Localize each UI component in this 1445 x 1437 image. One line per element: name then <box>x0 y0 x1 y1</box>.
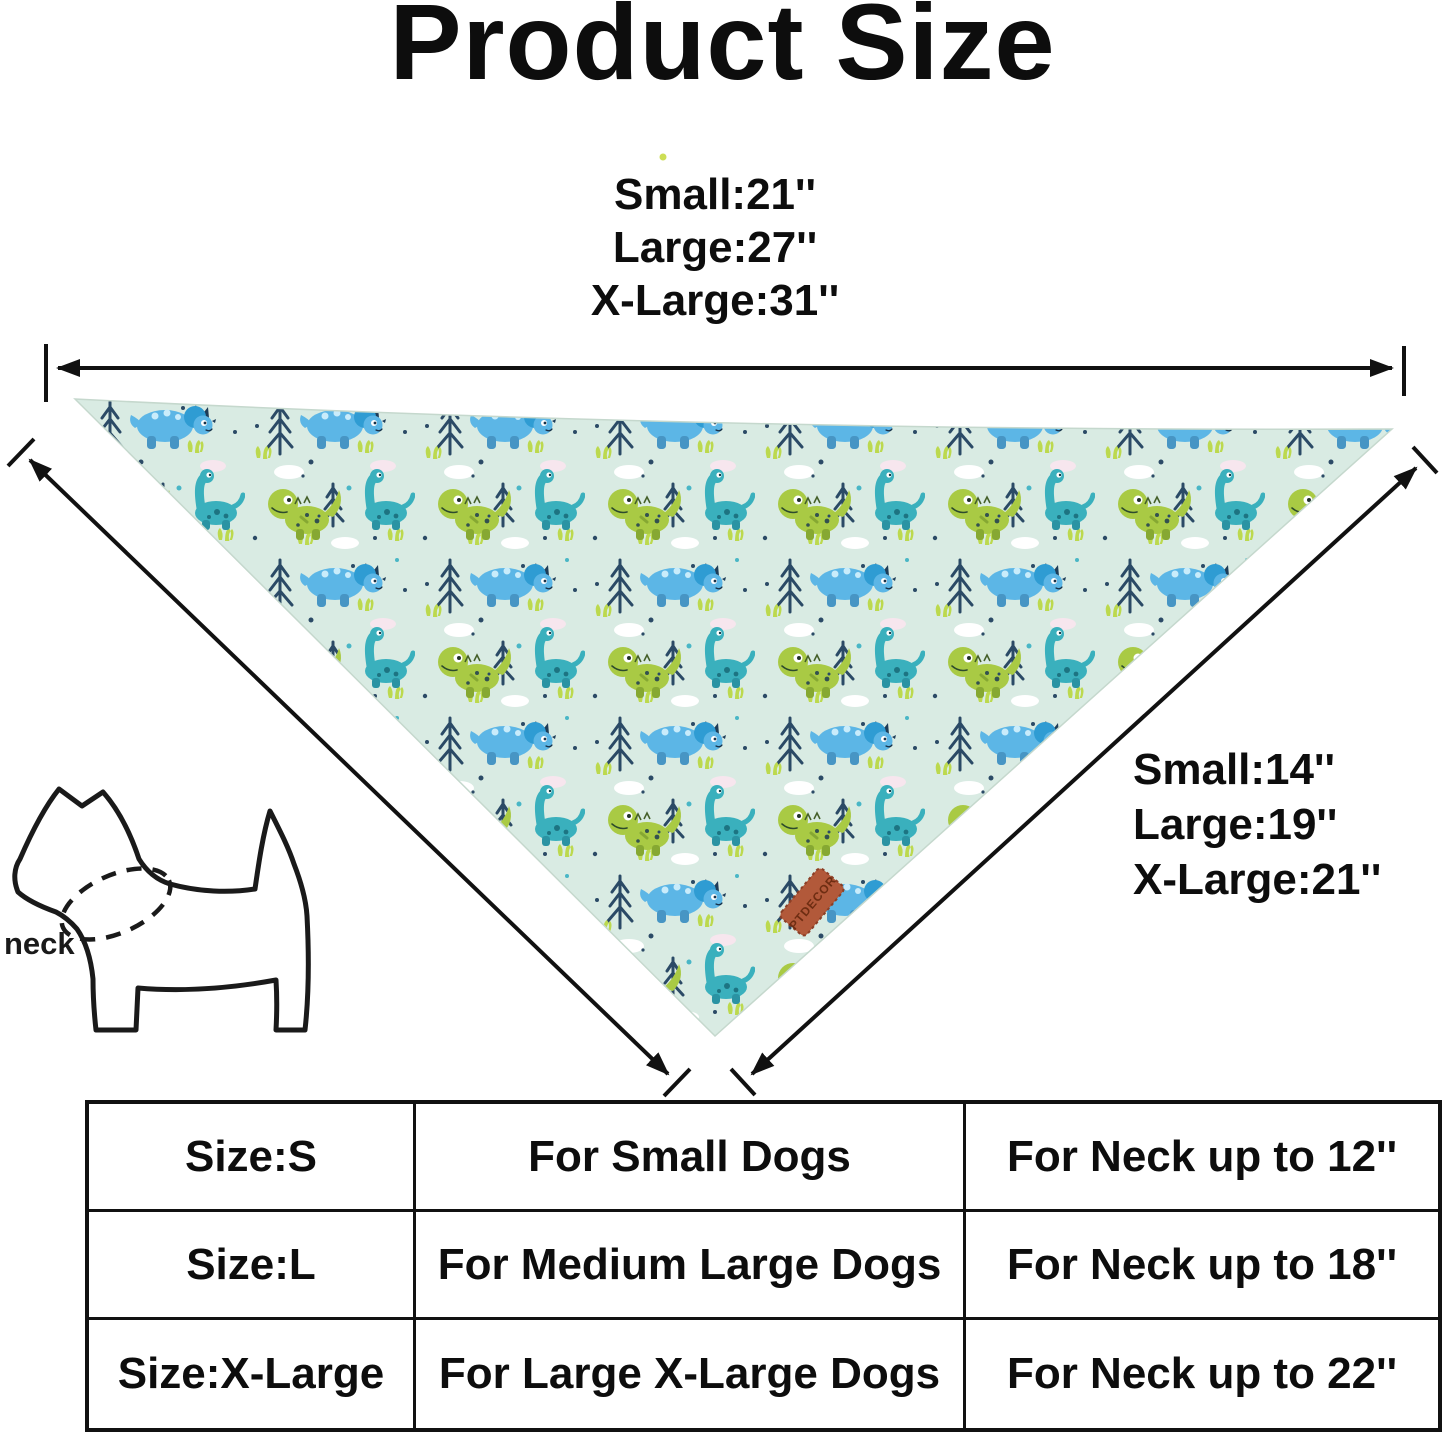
table-cell: Size:X-Large <box>89 1320 416 1428</box>
flat-size-xlarge: X-Large:31'' <box>495 274 935 327</box>
width-measurement-arrow <box>46 344 1404 402</box>
edge-size-labels: Small:14'' Large:19'' X-Large:21'' <box>1133 742 1381 907</box>
table-cell: For Neck up to 12'' <box>966 1104 1438 1212</box>
size-table: Size:S For Small Dogs For Neck up to 12'… <box>85 1100 1442 1432</box>
edge-size-large: Large:19'' <box>1133 797 1381 852</box>
product-size-chart: PTDECOR neck Product Size Small:21'' L <box>0 0 1445 1437</box>
edge-size-xlarge: X-Large:21'' <box>1133 852 1381 907</box>
flat-size-labels: Small:21'' Large:27'' X-Large:31'' <box>495 168 935 327</box>
edge-size-small: Small:14'' <box>1133 742 1381 797</box>
table-cell: For Medium Large Dogs <box>416 1212 966 1320</box>
neck-label: neck <box>4 926 75 962</box>
flat-size-large: Large:27'' <box>495 221 935 274</box>
dog-outline-icon <box>4 764 344 1064</box>
table-cell: For Neck up to 18'' <box>966 1212 1438 1320</box>
table-cell: Size:S <box>89 1104 416 1212</box>
speck <box>660 154 667 161</box>
table-cell: Size:L <box>89 1212 416 1320</box>
page-title: Product Size <box>0 0 1445 96</box>
flat-size-small: Small:21'' <box>495 168 935 221</box>
table-cell: For Small Dogs <box>416 1104 966 1212</box>
table-cell: For Neck up to 22'' <box>966 1320 1438 1428</box>
table-cell: For Large X-Large Dogs <box>416 1320 966 1428</box>
